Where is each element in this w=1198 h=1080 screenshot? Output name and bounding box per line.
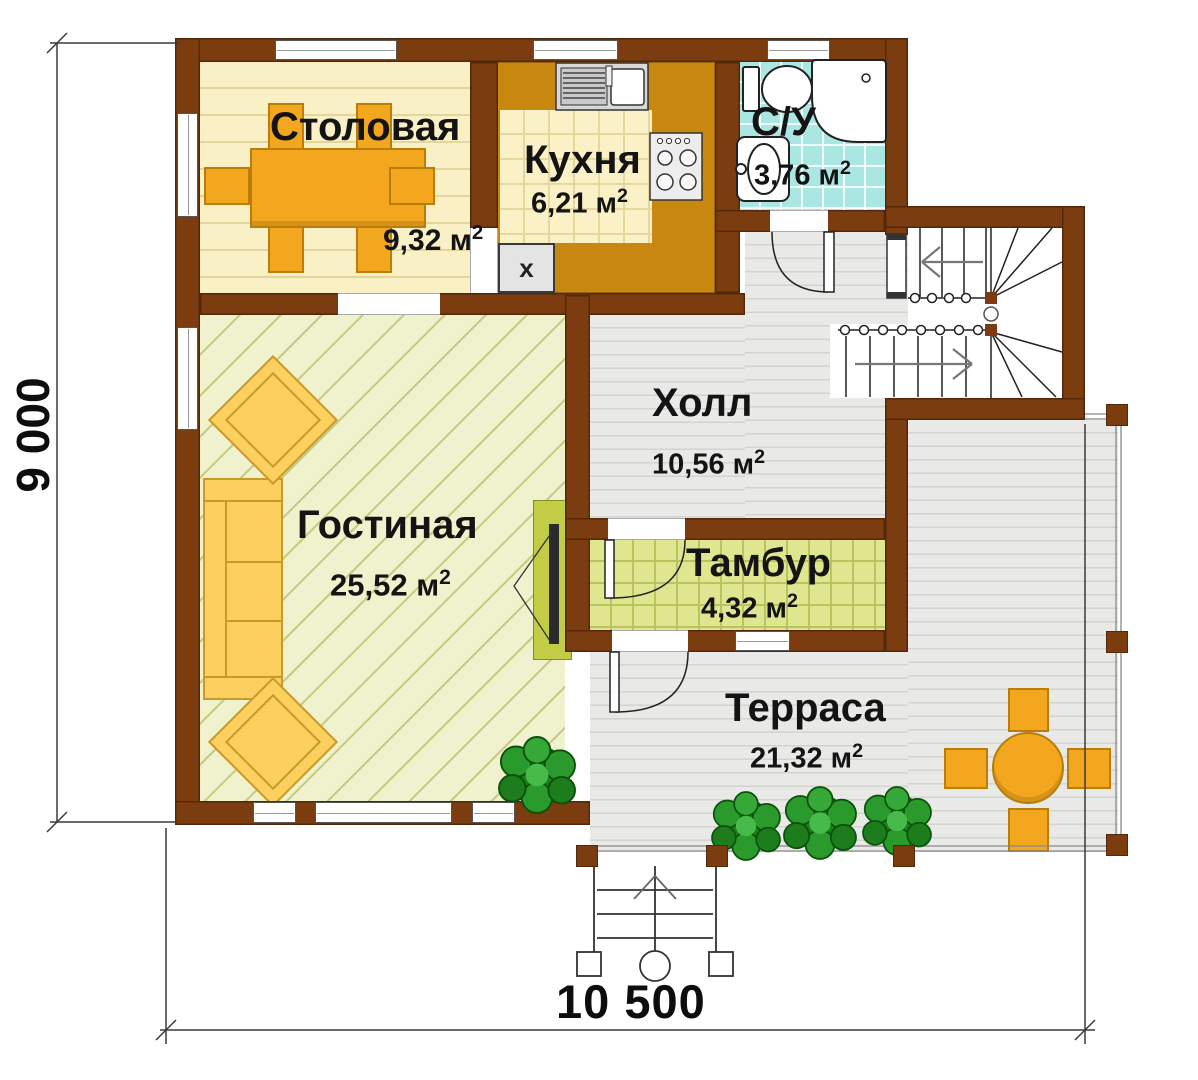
kitchen-area: 6,21 м2 [531, 185, 628, 221]
terrace-chair [1008, 688, 1049, 732]
hall-area: 10,56 м2 [652, 446, 765, 482]
window-dining-west [177, 113, 198, 217]
opening-dining-living [338, 293, 440, 315]
terrace-chair [944, 748, 988, 789]
terrace-post [576, 845, 598, 867]
terrace-table [992, 732, 1064, 804]
door-opening-bathroom [770, 210, 828, 232]
terrace-post [1106, 834, 1128, 856]
living-room-label: Гостиная [297, 503, 478, 548]
dining-chair [389, 167, 435, 205]
entrance-steps [577, 866, 733, 981]
dining-room-area: 9,32 м2 [383, 222, 483, 258]
wall-dining-living [200, 293, 745, 315]
dimension-height-label: 9 000 [6, 374, 60, 496]
window-living-south-3 [472, 802, 515, 823]
wall-kitchen-bathroom [715, 62, 740, 293]
window-living-south-2 [315, 802, 452, 823]
kitchen-label: Кухня [524, 138, 641, 183]
wall-stair-annex-south [885, 398, 1085, 420]
dining-room-label: Столовая [270, 105, 460, 150]
terrace-post [1106, 404, 1128, 426]
appliance-x-label: x [519, 253, 533, 284]
staircase-lower-floor [830, 324, 908, 398]
wall-dining-kitchen [470, 62, 498, 228]
window-dining-north [275, 40, 397, 60]
floor-plan: x [0, 0, 1198, 1080]
sofa [203, 478, 283, 700]
terrace-post [1106, 631, 1128, 653]
window-vestibule-south [735, 631, 790, 651]
window-kitchen-north [533, 40, 618, 60]
kitchen-appliance: x [498, 243, 555, 293]
dining-chair [268, 226, 304, 273]
wall-stair-annex-north [885, 206, 1085, 228]
wall-stair-annex-east [1062, 206, 1085, 420]
terrace-post [706, 845, 728, 867]
wall-living-hall [565, 295, 590, 652]
window-living-south-1 [253, 802, 296, 823]
wall-east-lower [885, 398, 908, 652]
door-opening-hall-vestibule [608, 518, 685, 540]
dimension-width-label: 10 500 [556, 974, 706, 1029]
window-living-west [177, 327, 198, 430]
terrace-label: Терраса [725, 686, 886, 731]
dining-chair [204, 167, 250, 205]
living-room-area: 25,52 м2 [330, 566, 451, 603]
window-bathroom-north [767, 40, 830, 60]
vestibule-label: Тамбур [686, 541, 831, 586]
vestibule-area: 4,32 м2 [701, 590, 798, 626]
door-opening-vestibule-terrace [612, 630, 688, 652]
staircase-floor [908, 228, 1062, 398]
terrace-chair [1008, 808, 1049, 852]
hall-label: Холл [652, 381, 752, 426]
terrace-area: 21,32 м2 [750, 740, 863, 776]
bathroom-area: 3,76 м2 [754, 157, 851, 193]
terrace-post [893, 845, 915, 867]
terrace-chair [1067, 748, 1111, 789]
bathroom-label: С/У [751, 100, 816, 145]
tv [549, 524, 559, 644]
